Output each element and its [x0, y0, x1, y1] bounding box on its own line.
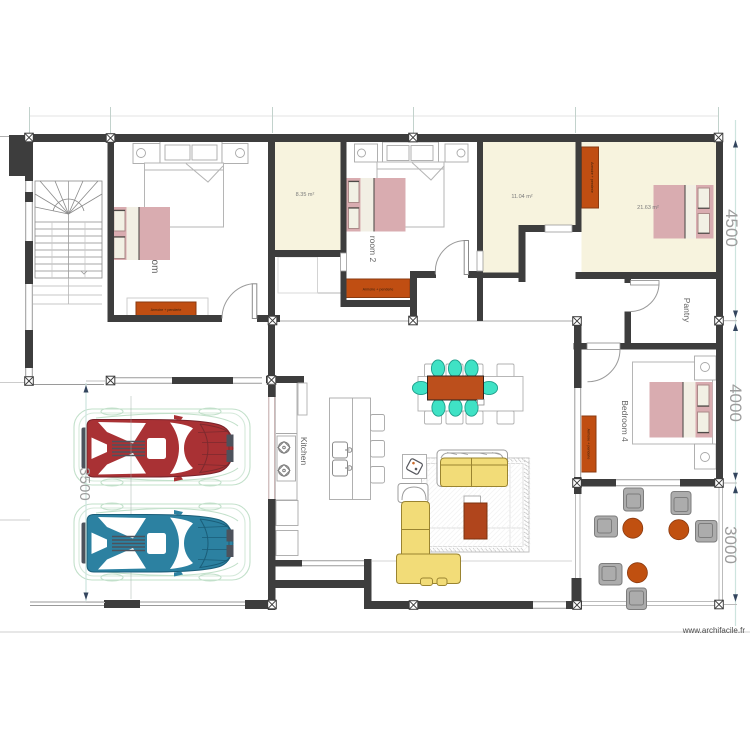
svg-text:Armoire + penderie: Armoire + penderie: [151, 308, 182, 312]
svg-text:Kitchen: Kitchen: [299, 437, 309, 466]
svg-text:Armoire + penderie: Armoire + penderie: [363, 288, 394, 292]
svg-text:Armoire + penderie: Armoire + penderie: [587, 429, 591, 460]
svg-text:3000: 3000: [721, 526, 740, 564]
svg-text:4000: 4000: [726, 384, 745, 422]
svg-text:3500: 3500: [76, 467, 93, 500]
svg-text:8.35 m²: 8.35 m²: [296, 192, 315, 198]
svg-text:Pantry: Pantry: [682, 298, 692, 323]
svg-text:Armoire + penderie: Armoire + penderie: [590, 162, 594, 193]
svg-text:11.04 m²: 11.04 m²: [511, 194, 532, 200]
svg-text:room 2: room 2: [368, 236, 378, 263]
svg-text:4500: 4500: [722, 209, 741, 247]
svg-text:www.archifacile.fr: www.archifacile.fr: [682, 626, 746, 635]
svg-text:Bedroom 4: Bedroom 4: [620, 400, 630, 442]
svg-text:21.63 m²: 21.63 m²: [637, 205, 659, 211]
